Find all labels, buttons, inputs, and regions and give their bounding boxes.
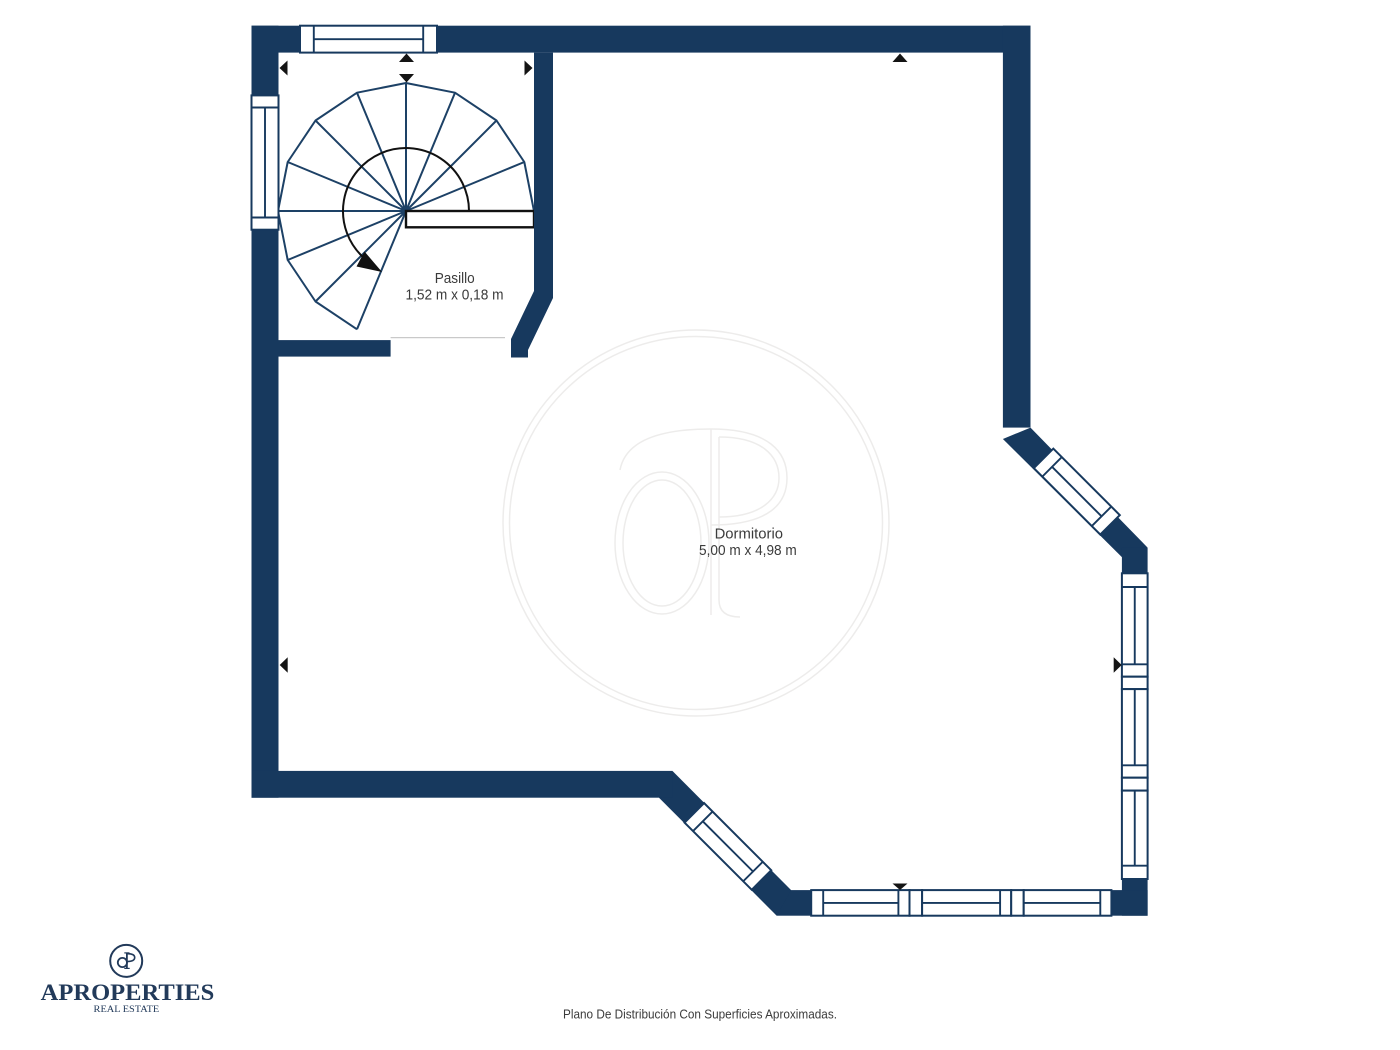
svg-text:Dormitorio: Dormitorio	[715, 526, 783, 543]
svg-text:Pasillo: Pasillo	[435, 270, 475, 287]
svg-text:APROPERTIES: APROPERTIES	[41, 980, 215, 1005]
svg-text:1,52 m x 0,18 m: 1,52 m x 0,18 m	[406, 287, 504, 304]
svg-text:REAL ESTATE: REAL ESTATE	[94, 1004, 160, 1014]
svg-text:5,00 m x 4,98 m: 5,00 m x 4,98 m	[699, 542, 797, 559]
svg-text:Plano De Distribución Con Supe: Plano De Distribución Con Superficies Ap…	[563, 1006, 837, 1021]
